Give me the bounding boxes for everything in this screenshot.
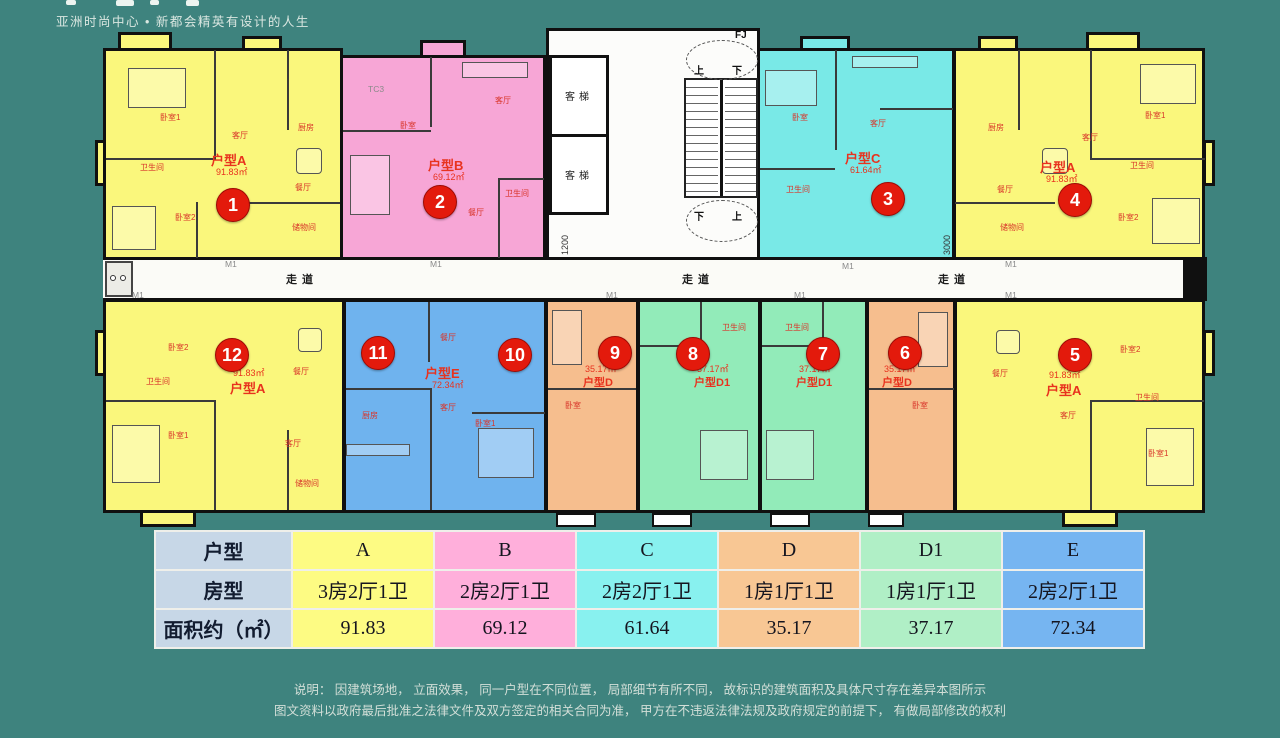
unit-2-area-label: 69.12㎡ — [433, 170, 465, 183]
room-label: 客厅 — [440, 402, 456, 413]
tc3-label: TC3 — [368, 84, 384, 94]
elevator-label: 客梯 — [552, 134, 606, 213]
corridor — [103, 257, 1207, 301]
unit-5-type-label: 户型A — [1046, 380, 1081, 399]
furniture-table-icon — [296, 148, 322, 174]
room-label: 卫生间 — [146, 376, 170, 387]
logo-fragment-icon — [116, 0, 134, 6]
door-tag: M1 — [842, 261, 854, 271]
table-type-d1: D1 — [861, 532, 1001, 569]
furniture-bed-icon — [700, 430, 748, 480]
table-area-b: 69.12 — [435, 610, 575, 647]
furniture-bed-icon — [918, 312, 948, 367]
table-type-c: C — [577, 532, 717, 569]
stair-down-label: 下 — [732, 62, 742, 77]
room-label: 储物间 — [292, 222, 316, 233]
furniture-bed-icon — [112, 206, 156, 250]
room-label: 餐厅 — [295, 182, 311, 193]
furniture-table-icon — [996, 330, 1020, 354]
room-label: 卫生间 — [1135, 392, 1159, 403]
door-tag: M1 — [1005, 259, 1017, 269]
room-label: 餐厅 — [440, 332, 456, 343]
unit-9-badge: 9 — [598, 336, 632, 370]
unit-8-type-label: 户型D1 — [694, 374, 730, 390]
table-area-d: 35.17 — [719, 610, 859, 647]
room-label: 卧室1 — [168, 430, 188, 441]
table-area-c: 61.64 — [577, 610, 717, 647]
room-label: 卫生间 — [1130, 160, 1154, 171]
table-type-a: A — [293, 532, 433, 569]
corridor-shaft — [1183, 259, 1207, 299]
unit-11-badge: 11 — [361, 336, 395, 370]
table-layout-a: 3房2厅1卫 — [293, 571, 433, 608]
unit-5-badge: 5 — [1058, 338, 1092, 372]
elevator-shafts: 客梯 客梯 — [549, 55, 609, 215]
table-layout-c: 2房2厅1卫 — [577, 571, 717, 608]
unit-e-area-label: 72.34㎡ — [432, 378, 464, 391]
room-label: 厨房 — [362, 410, 378, 421]
room-label: 卧室1 — [475, 418, 495, 429]
table-type-d: D — [719, 532, 859, 569]
stair-rail — [720, 80, 723, 196]
room-label: 餐厅 — [992, 368, 1008, 379]
ac-platform — [868, 513, 904, 527]
furniture-cabinet-icon — [852, 56, 918, 68]
room-label: 卧室2 — [1118, 212, 1138, 223]
ac-platform — [652, 513, 692, 527]
logo-fragment-icon — [150, 0, 159, 5]
room-label: 卧室 — [792, 112, 808, 123]
room-label: 厨房 — [298, 122, 314, 133]
table-layout-b: 2房2厅1卫 — [435, 571, 575, 608]
room-label: 卧室2 — [175, 212, 195, 223]
unit-12-badge: 12 — [215, 338, 249, 372]
room-label: 卫生间 — [786, 184, 810, 195]
door-tag: M1 — [1005, 290, 1017, 300]
unit-9-type-label: 户型D — [583, 374, 613, 390]
corridor-label: 走道 — [938, 271, 970, 287]
table-header-layout: 房型 — [156, 571, 291, 608]
door-tag: M1 — [606, 290, 618, 300]
unit-7-badge: 7 — [806, 337, 840, 371]
room-label: 卫生间 — [140, 162, 164, 173]
disclaimer-line-1: 说明： 因建筑场地， 立面效果， 同一户型在不同位置， 局部细节有所不同， 故标… — [0, 680, 1280, 701]
unit-8-badge: 8 — [676, 337, 710, 371]
room-label: 卧室 — [912, 400, 928, 411]
table-type-b: B — [435, 532, 575, 569]
furniture-sofa-icon — [462, 62, 528, 78]
room-label: 卧室 — [565, 400, 581, 411]
door-tag: M1 — [794, 290, 806, 300]
table-type-e: E — [1003, 532, 1143, 569]
unit-6-type-label: 户型D — [882, 374, 912, 390]
furniture-bed-icon — [112, 425, 160, 483]
corridor-window — [105, 261, 133, 297]
unit-7-type-label: 户型D1 — [796, 374, 832, 390]
table-layout-d1: 1房1厅1卫 — [861, 571, 1001, 608]
elevator-label: 客梯 — [552, 58, 606, 134]
unit-7-block — [759, 299, 868, 513]
corridor-label: 走道 — [682, 271, 714, 287]
table-header-area: 面积约（㎡） — [156, 610, 291, 647]
unit-12-type-label: 户型A — [230, 378, 265, 397]
room-label: 客厅 — [1082, 132, 1098, 143]
dimension-1200: 1200 — [560, 235, 570, 255]
room-label: 客厅 — [285, 438, 301, 449]
door-tag: M1 — [132, 290, 144, 300]
table-layout-d: 1房1厅1卫 — [719, 571, 859, 608]
room-label: 卧室1 — [1145, 110, 1165, 121]
door-tag: M1 — [430, 259, 442, 269]
furniture-bed-icon — [478, 428, 534, 478]
fj-label: FJ — [735, 30, 747, 41]
stair-flight — [686, 80, 718, 196]
table-area-a: 91.83 — [293, 610, 433, 647]
stair-flight — [725, 80, 757, 196]
unit-1-area-label: 91.83㎡ — [216, 165, 248, 178]
disclaimer: 说明： 因建筑场地， 立面效果， 同一户型在不同位置， 局部细节有所不同， 故标… — [0, 680, 1280, 722]
room-label: 卧室1 — [160, 112, 180, 123]
room-label: 卫生间 — [505, 188, 529, 199]
furniture-bed-icon — [128, 68, 186, 108]
furniture-bed-icon — [350, 155, 390, 215]
room-label: 餐厅 — [997, 184, 1013, 195]
room-label: 客厅 — [870, 118, 886, 129]
disclaimer-line-2: 图文资料以政府最后批准之法律文件及双方签定的相关合同为准， 甲方在不违返法律法规… — [0, 701, 1280, 722]
furniture-counter-icon — [346, 444, 410, 456]
tagline: 亚洲时尚中心 • 新都会精英有设计的人生 — [56, 11, 310, 30]
unit-info-table: 户型 A B C D D1 E 房型 3房2厅1卫 2房2厅1卫 2房2厅1卫 … — [154, 530, 1145, 649]
room-label: 卫生间 — [722, 322, 746, 333]
furniture-table-icon — [298, 328, 322, 352]
dimension-3000: 3000 — [942, 235, 952, 255]
furniture-bed-icon — [1152, 198, 1200, 244]
unit-6-badge: 6 — [888, 336, 922, 370]
furniture-bed-icon — [766, 430, 814, 480]
logo-fragment-icon — [66, 0, 76, 5]
unit-3-area-label: 61.64㎡ — [850, 163, 882, 176]
door-tag: M1 — [225, 259, 237, 269]
table-layout-e: 2房2厅1卫 — [1003, 571, 1143, 608]
furniture-bed-icon — [765, 70, 817, 106]
room-label: 储物间 — [1000, 222, 1024, 233]
unit-1-badge: 1 — [216, 188, 250, 222]
table-area-e: 72.34 — [1003, 610, 1143, 647]
room-label: 餐厅 — [468, 207, 484, 218]
room-label: 客厅 — [1060, 410, 1076, 421]
unit-2-badge: 2 — [423, 185, 457, 219]
table-header-type: 户型 — [156, 532, 291, 569]
room-label: 卧室2 — [168, 342, 188, 353]
unit-4-badge: 4 — [1058, 183, 1092, 217]
logo-fragment-icon — [186, 0, 199, 6]
room-label: 卧室 — [400, 120, 416, 131]
room-label: 卧室2 — [1120, 344, 1140, 355]
room-label: 卧室1 — [1148, 448, 1168, 459]
room-label: 储物间 — [295, 478, 319, 489]
stair-up-label: 上 — [694, 62, 704, 77]
room-label: 卫生间 — [785, 322, 809, 333]
unit-3-badge: 3 — [871, 182, 905, 216]
staircase — [684, 78, 758, 198]
furniture-bed-icon — [552, 310, 582, 365]
room-label: 客厅 — [232, 130, 248, 141]
ac-platform — [556, 513, 596, 527]
unit-10-badge: 10 — [498, 338, 532, 372]
stair-up-label: 上 — [732, 208, 742, 223]
room-label: 餐厅 — [293, 366, 309, 377]
stair-down-label: 下 — [694, 208, 704, 223]
poster-floorplan-page: 亚洲时尚中心 • 新都会精英有设计的人生 客梯 客梯 上 下 下 上 FJ — [0, 0, 1280, 738]
room-label: 厨房 — [988, 122, 1004, 133]
ac-platform — [770, 513, 810, 527]
furniture-bed-icon — [1140, 64, 1196, 104]
corridor-label: 走道 — [286, 271, 318, 287]
room-label: 客厅 — [495, 95, 511, 106]
table-area-d1: 37.17 — [861, 610, 1001, 647]
